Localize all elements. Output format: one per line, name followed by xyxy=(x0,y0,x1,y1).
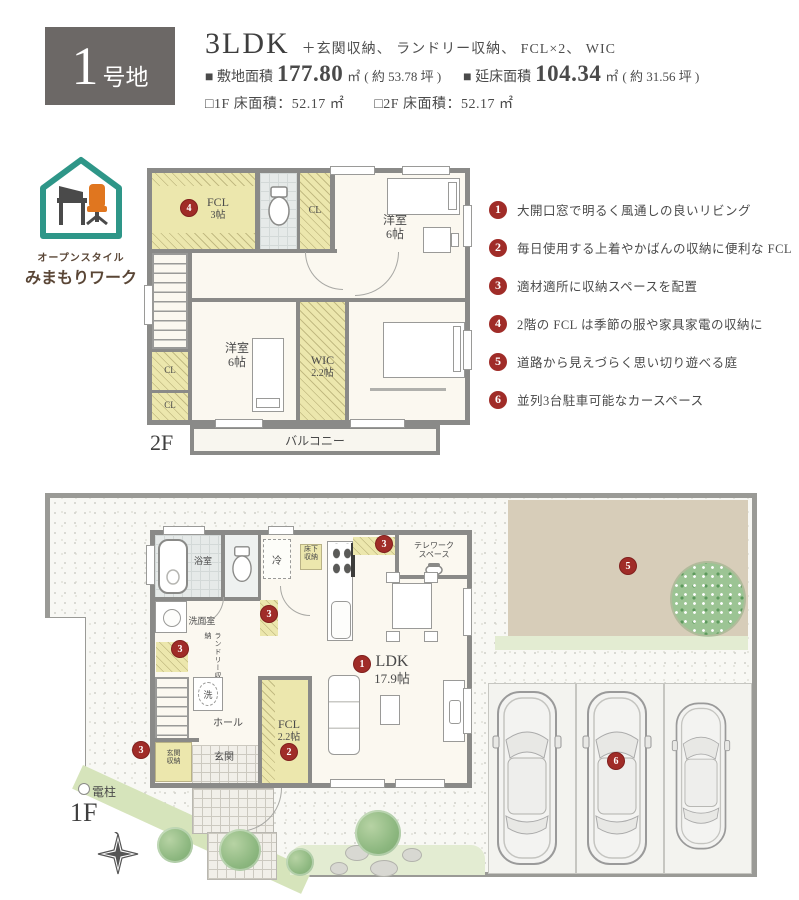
fridge-label: 冷 xyxy=(272,552,282,567)
area-row: ■ 敷地面積 177.80 ㎡ ( 約 53.78 坪 ) ■ 延床面積 104… xyxy=(205,61,699,87)
site-area-tsubo: ( 約 53.78 坪 ) xyxy=(364,69,441,84)
dining-table xyxy=(392,583,432,629)
floor-areas-row: □1F 床面積：52.17 ㎡ □2F 床面積：52.17 ㎡ □2F 床面積：… xyxy=(205,93,540,113)
total-area-label: ■ 延床面積 xyxy=(463,70,531,85)
house-telework-icon xyxy=(33,152,129,244)
balcony-door-window xyxy=(215,419,263,428)
feature-item: 5 道路から見えづらく思い切り遊べる庭 xyxy=(489,352,794,371)
plan-type: 3LDK xyxy=(205,27,290,60)
site-area-label: ■ 敷地面積 xyxy=(205,70,273,85)
logo-line2: みまもりワーク xyxy=(22,264,140,288)
bush xyxy=(355,810,401,856)
lawn-strip xyxy=(495,636,748,650)
tv-icon xyxy=(449,700,461,724)
entrance-floor xyxy=(192,745,258,783)
feature-number-badge: 1 xyxy=(489,201,507,219)
fcl-shelf xyxy=(152,173,255,186)
floor2-area: □2F 床面積：52.17 ㎡ xyxy=(374,97,513,112)
marker-fcl-1f: 2 xyxy=(280,743,298,761)
lot-number: 1 xyxy=(72,39,99,93)
window xyxy=(163,526,205,535)
car-top-view xyxy=(670,700,732,852)
feature-item: 3 適材適所に収納スペースを配置 xyxy=(489,276,794,295)
window xyxy=(395,779,445,788)
cl-label: CL xyxy=(152,365,188,375)
balcony: バルコニー xyxy=(190,425,440,455)
refrigerator-space: 冷 xyxy=(263,539,291,579)
car-top-view xyxy=(582,687,652,869)
stairs-2f xyxy=(152,253,188,349)
total-area-value: 104.34 xyxy=(535,61,601,86)
chair xyxy=(451,233,459,247)
ldk-label: LDK xyxy=(370,653,414,671)
sofa xyxy=(328,675,360,755)
dining-chair xyxy=(424,572,438,583)
feature-item: 4 2階の FCL は季節の服や家具家電の収納に xyxy=(489,314,794,333)
marker-parking: 6 xyxy=(607,752,625,770)
site-area-unit: ㎡ xyxy=(347,69,360,84)
lot-number-badge: 1 号地 xyxy=(45,27,175,105)
floor1-label: 1F xyxy=(70,798,97,828)
compass-icon xyxy=(96,832,140,876)
window xyxy=(146,545,155,585)
feature-text: 大開口窓で明るく風通しの良いリビング xyxy=(517,200,751,219)
feature-text: 2階の FCL は季節の服や家具家電の収納に xyxy=(517,314,763,333)
stove-icon xyxy=(329,543,355,577)
underfloor-storage: 床下 収納 xyxy=(300,544,322,570)
site-area-value: 177.80 xyxy=(277,61,343,86)
window xyxy=(268,526,294,535)
wall xyxy=(258,535,261,597)
toilet-icon xyxy=(231,545,253,585)
feature-text: 並列3台駐車可能なカースペース xyxy=(517,390,704,409)
wall xyxy=(188,253,192,423)
coffee-table xyxy=(380,695,400,725)
washer: 洗 xyxy=(193,677,223,711)
feature-text: 毎日使用する上着やかばんの収納に便利な FCL xyxy=(517,238,792,257)
dining-chair xyxy=(386,572,400,583)
feature-number-badge: 4 xyxy=(489,315,507,333)
window xyxy=(144,285,153,325)
window xyxy=(463,330,472,370)
bed-pillow xyxy=(453,326,461,372)
feature-number-badge: 2 xyxy=(489,239,507,257)
plan-extras: ＋玄関収納、 ランドリー収納、 FCL×2、 WIC xyxy=(302,42,616,57)
dining-chair xyxy=(424,631,438,642)
marker-laundry: 3 xyxy=(171,640,189,658)
logo-line1: オープンスタイル xyxy=(22,249,140,264)
feature-number-badge: 5 xyxy=(489,353,507,371)
feature-item: 2 毎日使用する上着やかばんの収納に便利な FCL xyxy=(489,238,794,257)
fcl-2f-label: FCL 3帖 xyxy=(196,196,240,221)
bush xyxy=(286,848,314,876)
marker-pantry: 3 xyxy=(375,535,393,553)
bed-pillow xyxy=(448,182,457,210)
hall-label: ホール xyxy=(205,718,251,730)
feature-list: 1 大開口窓で明るく風通しの良いリビング 2 毎日使用する上着やかばんの収納に便… xyxy=(489,200,794,428)
telework-space-label: テレワーク スペース xyxy=(404,541,464,559)
kitchen-sink xyxy=(331,601,351,639)
utility-pole-icon xyxy=(78,783,90,795)
marker-entrance-storage: 3 xyxy=(132,741,150,759)
window xyxy=(330,779,385,788)
balcony-door-window xyxy=(350,419,405,428)
bathtub-icon xyxy=(158,539,188,594)
marker-hall-closet: 3 xyxy=(260,605,278,623)
feature-item: 6 並列3台駐車可能なカースペース xyxy=(489,390,794,409)
wall xyxy=(330,173,335,249)
vanity-sink xyxy=(163,609,181,627)
wall xyxy=(345,302,349,420)
shelf-line xyxy=(370,388,446,391)
floor2-label: 2F xyxy=(150,430,173,456)
dining-chair xyxy=(386,631,400,642)
window xyxy=(463,688,472,734)
cl-label: CL xyxy=(300,205,330,217)
window xyxy=(402,166,450,175)
bathroom-label: 浴室 xyxy=(188,556,218,566)
marker-ldk: 1 xyxy=(353,655,371,673)
garden-tree xyxy=(672,563,744,635)
feature-text: 適材適所に収納スペースを配置 xyxy=(517,276,698,295)
window xyxy=(463,205,472,247)
total-area-unit: ㎡ xyxy=(605,69,618,84)
stepping-stone xyxy=(402,848,422,862)
lot-suffix: 号地 xyxy=(103,40,149,92)
real-estate-floorplan-sheet: 1 号地 3LDK ＋玄関収納、 ランドリー収納、 FCL×2、 WIC ■ 敷… xyxy=(0,0,799,900)
feature-number-badge: 3 xyxy=(489,277,507,295)
fcl-1f-label: FCL 2.2帖 xyxy=(268,718,310,743)
washer-drum xyxy=(198,682,218,706)
floor1-area: □1F 床面積：52.17 ㎡ xyxy=(205,97,344,112)
stepping-stone xyxy=(370,860,398,877)
bush xyxy=(219,829,261,871)
plan-type-row: 3LDK ＋玄関収納、 ランドリー収納、 FCL×2、 WIC xyxy=(205,27,616,61)
entrance-label: 玄関 xyxy=(202,752,246,764)
entrance-storage: 玄関 収納 xyxy=(155,742,192,782)
feature-item: 1 大開口窓で明るく風通しの良いリビング xyxy=(489,200,794,219)
wic-label: WIC 2.2帖 xyxy=(298,354,347,379)
desk xyxy=(423,227,451,253)
marker-garden: 5 xyxy=(619,557,637,575)
mimamori-work-logo: オープンスタイル みまもりワーク xyxy=(22,152,140,288)
car-top-view xyxy=(492,687,562,869)
bedroom1-label: 洋室 6帖 xyxy=(372,214,418,242)
laundry-storage-label: ランドリー収納 xyxy=(203,632,223,680)
total-area-tsubo: ( 約 31.56 坪 ) xyxy=(622,69,699,84)
feature-number-badge: 6 xyxy=(489,391,507,409)
fcl-shelf xyxy=(152,233,255,249)
bed-pillow xyxy=(256,398,280,408)
stepping-stone xyxy=(330,862,348,875)
ldk-size-label: 17.9帖 xyxy=(364,672,420,687)
marker-fcl-2f: 4 xyxy=(180,199,198,217)
bush xyxy=(157,827,193,863)
cl-label: CL xyxy=(152,400,188,410)
window xyxy=(330,166,375,175)
window xyxy=(463,588,472,636)
feature-text: 道路から見えづらく思い切り遊べる庭 xyxy=(517,352,738,371)
toilet-icon xyxy=(267,185,291,229)
stairs-1f xyxy=(155,677,189,741)
